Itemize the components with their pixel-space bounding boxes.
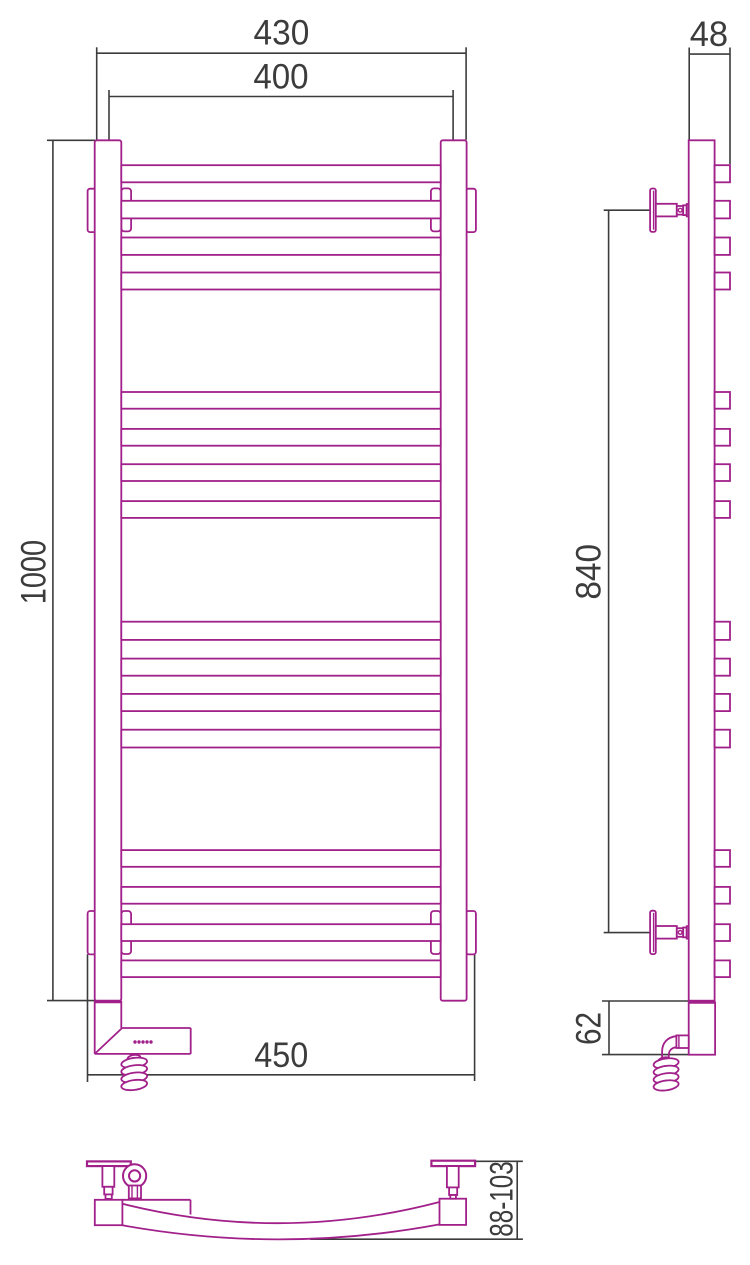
svg-text:48: 48 [690, 15, 728, 54]
svg-text:1000: 1000 [15, 540, 54, 604]
svg-text:62: 62 [570, 1012, 609, 1045]
svg-text:400: 400 [253, 57, 308, 96]
svg-text:430: 430 [254, 14, 310, 53]
svg-text:840: 840 [569, 544, 608, 600]
svg-text:450: 450 [254, 1036, 308, 1075]
svg-text:88-103: 88-103 [484, 1161, 520, 1236]
